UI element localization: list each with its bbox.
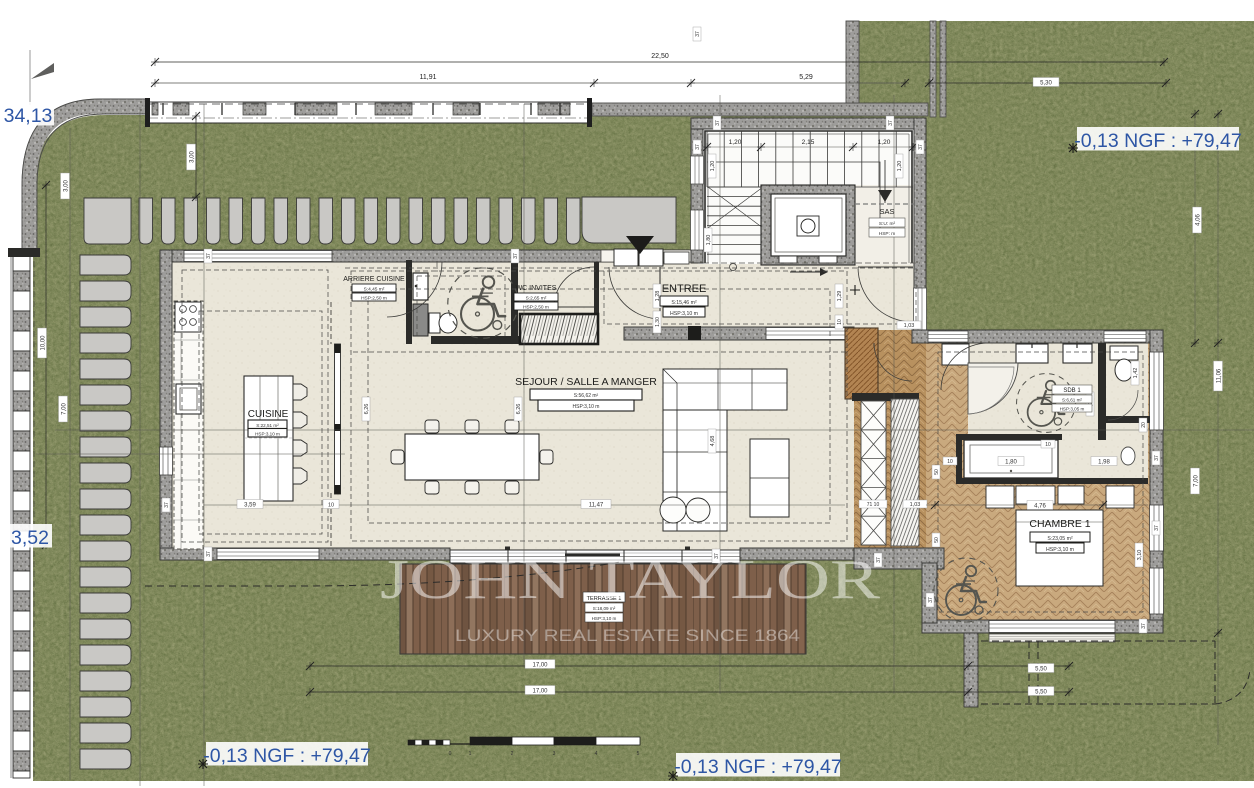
svg-text:1,20: 1,20: [897, 161, 903, 172]
svg-text:1,20: 1,20: [729, 139, 742, 146]
svg-text:-0,13 NGF : +79,47: -0,13 NGF : +79,47: [1074, 130, 1241, 152]
svg-text:37: 37: [715, 120, 721, 126]
svg-text:1,20: 1,20: [710, 161, 716, 172]
svg-text:4: 4: [595, 751, 598, 757]
svg-text:37: 37: [888, 120, 894, 126]
svg-text:S:4,45 m²: S:4,45 m²: [364, 287, 385, 293]
svg-text:S:U: m²: S:U: m²: [879, 221, 896, 227]
svg-text:5,30: 5,30: [1040, 80, 1052, 86]
svg-text:37: 37: [695, 31, 701, 37]
svg-text:S:23,05 m²: S:23,05 m²: [1047, 536, 1073, 542]
svg-text:S:2,65 m²: S:2,65 m²: [526, 296, 547, 302]
svg-text:7,00: 7,00: [61, 403, 67, 415]
svg-text:S:22,51 m²: S:22,51 m²: [256, 423, 279, 428]
svg-text:22,50: 22,50: [651, 53, 669, 60]
svg-text:LUXURY REAL ESTATE SINCE 1864: LUXURY REAL ESTATE SINCE 1864: [455, 627, 800, 645]
svg-text:3,10: 3,10: [1137, 550, 1143, 561]
svg-text:1,29: 1,29: [837, 291, 843, 302]
svg-text:SDB 1: SDB 1: [1063, 388, 1081, 394]
svg-text:50: 50: [934, 537, 940, 543]
svg-text:3,00: 3,00: [63, 180, 69, 192]
svg-text:37: 37: [1154, 525, 1160, 531]
svg-text:1,80: 1,80: [1005, 459, 1017, 465]
svg-text:10: 10: [328, 502, 334, 508]
svg-text:37: 37: [206, 253, 212, 259]
svg-text:2: 2: [511, 751, 514, 757]
svg-text:37: 37: [928, 597, 934, 603]
svg-text:SEJOUR / SALLE A MANGER: SEJOUR / SALLE A MANGER: [515, 376, 657, 388]
svg-text:1,80: 1,80: [706, 235, 712, 246]
svg-text:S:56,62 m²: S:56,62 m²: [574, 393, 599, 399]
svg-text:11,91: 11,91: [420, 74, 437, 81]
svg-text:HSP:3,10 m: HSP:3,10 m: [1046, 547, 1074, 553]
svg-text:1: 1: [469, 751, 472, 757]
svg-text:5,29: 5,29: [799, 74, 813, 81]
svg-text:11,06: 11,06: [1216, 368, 1222, 383]
svg-text:ENTREE: ENTREE: [662, 283, 707, 295]
svg-text:HSP: m: HSP: m: [879, 231, 896, 237]
svg-text:HSP:3,10 m: HSP:3,10 m: [592, 616, 617, 621]
svg-text:CHAMBRE 1: CHAMBRE 1: [1029, 518, 1090, 530]
svg-text:WC INVITES: WC INVITES: [516, 285, 557, 292]
svg-text:10: 10: [1045, 442, 1051, 448]
svg-text:50: 50: [934, 469, 940, 475]
svg-text:17,00: 17,00: [532, 688, 548, 694]
svg-text:SAS: SAS: [879, 207, 894, 216]
svg-text:1,98: 1,98: [1098, 459, 1110, 465]
svg-text:HSP:3,10 m: HSP:3,10 m: [670, 311, 698, 317]
svg-text:37: 37: [513, 253, 519, 259]
svg-text:ARRIERE CUISINE: ARRIERE CUISINE: [343, 276, 405, 283]
svg-text:3,59: 3,59: [244, 502, 256, 508]
svg-text:10: 10: [947, 459, 953, 465]
svg-text:1,42: 1,42: [1133, 368, 1139, 379]
svg-text:5,50: 5,50: [1035, 689, 1047, 695]
svg-text:4,06: 4,06: [1195, 214, 1201, 226]
svg-text:S:15,46 m²: S:15,46 m²: [671, 300, 697, 306]
svg-text:0: 0: [449, 751, 452, 757]
svg-text:3: 3: [553, 751, 556, 757]
svg-text:1,03: 1,03: [904, 323, 915, 329]
svg-text:4,68: 4,68: [710, 436, 716, 447]
svg-text:CUISINE: CUISINE: [248, 409, 289, 420]
svg-text:37: 37: [918, 144, 924, 150]
svg-text:JOHN TAYLOR: JOHN TAYLOR: [380, 549, 881, 611]
svg-text:7,00: 7,00: [1193, 475, 1199, 487]
svg-text:11,47: 11,47: [589, 502, 604, 508]
svg-text:71 10: 71 10: [867, 502, 880, 508]
svg-text:1,03: 1,03: [910, 502, 921, 508]
svg-text:4,76: 4,76: [1034, 503, 1046, 509]
svg-text:37: 37: [206, 551, 212, 557]
svg-text:-0,13 NGF : +79,47: -0,13 NGF : +79,47: [203, 745, 370, 767]
svg-text:20: 20: [1141, 422, 1147, 428]
svg-text:17,00: 17,00: [532, 662, 548, 668]
svg-text:HSP:2,50 m: HSP:2,50 m: [361, 296, 387, 302]
svg-text:HSP:3,05 m: HSP:3,05 m: [1060, 407, 1085, 412]
svg-text:3,00: 3,00: [189, 151, 195, 163]
svg-text:37: 37: [1141, 623, 1147, 629]
svg-text:5: 5: [637, 751, 640, 757]
svg-text:10: 10: [837, 319, 843, 325]
svg-text:6,26: 6,26: [364, 404, 370, 415]
svg-text:-0,13 NGF : +79,47: -0,13 NGF : +79,47: [674, 756, 841, 778]
svg-text:HSP:3,10 m: HSP:3,10 m: [573, 404, 600, 410]
svg-text:6,26: 6,26: [516, 404, 522, 415]
svg-text:S:6,61 m²: S:6,61 m²: [1062, 398, 1082, 403]
svg-text:10,00: 10,00: [40, 335, 46, 351]
svg-text:34,13: 34,13: [4, 105, 53, 127]
svg-text:37: 37: [1154, 455, 1160, 461]
svg-text:2,15: 2,15: [802, 139, 815, 146]
svg-text:1,20: 1,20: [878, 139, 891, 146]
svg-text:HSP:2,50 m: HSP:2,50 m: [523, 305, 549, 311]
svg-text:37: 37: [164, 502, 170, 508]
svg-text:5,50: 5,50: [1035, 666, 1047, 672]
svg-text:HSP:3,10 m: HSP:3,10 m: [255, 432, 280, 437]
svg-text:3,52: 3,52: [11, 527, 49, 549]
svg-text:37: 37: [695, 144, 701, 150]
svg-text:1,30: 1,30: [655, 317, 661, 327]
